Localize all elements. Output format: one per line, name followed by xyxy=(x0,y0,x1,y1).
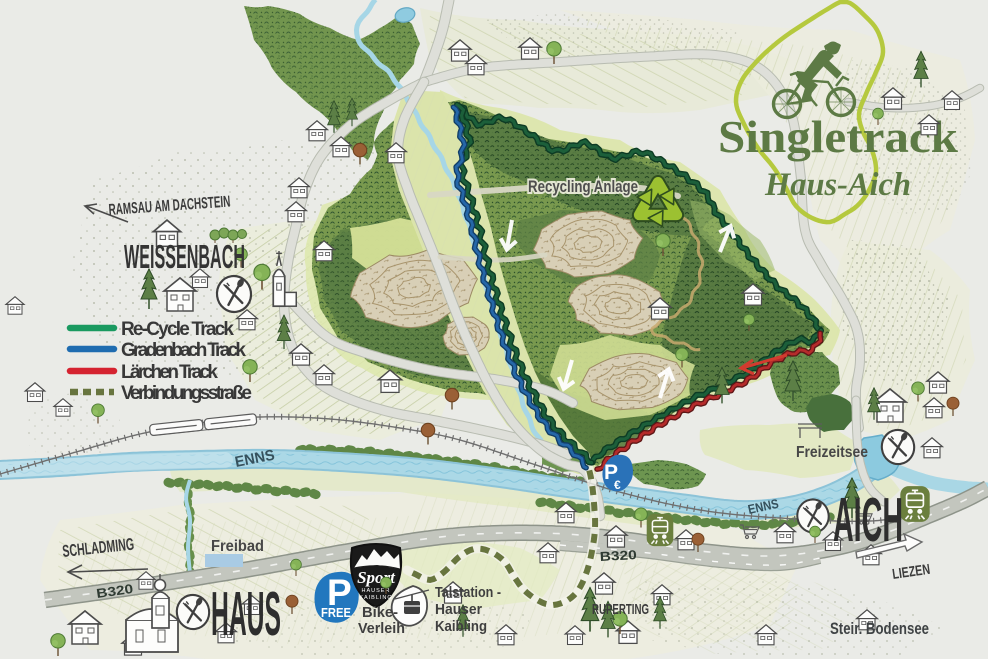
svg-text:FREE: FREE xyxy=(321,606,351,620)
svg-text:Bike-: Bike- xyxy=(362,604,398,621)
svg-text:Hauser: Hauser xyxy=(435,602,482,618)
svg-text:KAIBLING: KAIBLING xyxy=(359,595,392,601)
svg-text:Steir. Bodensee: Steir. Bodensee xyxy=(830,620,929,638)
svg-text:Singletrack: Singletrack xyxy=(718,111,958,162)
svg-text:Lärchen Track: Lärchen Track xyxy=(121,362,218,383)
svg-text:Verleih: Verleih xyxy=(358,620,405,637)
svg-text:Re-Cycle Track: Re-Cycle Track xyxy=(121,319,234,340)
svg-text:B320: B320 xyxy=(599,547,637,564)
svg-text:Kaibling: Kaibling xyxy=(435,619,487,635)
svg-text:Recycling Anlage: Recycling Anlage xyxy=(528,178,638,196)
svg-text:€: € xyxy=(614,478,621,492)
svg-text:Haus-Aich: Haus-Aich xyxy=(764,167,911,203)
svg-text:Gradenbach Track: Gradenbach Track xyxy=(121,340,246,361)
svg-text:Freibad: Freibad xyxy=(211,538,264,555)
svg-text:Verbindungsstraße: Verbindungsstraße xyxy=(121,383,252,404)
svg-text:HAUS: HAUS xyxy=(211,580,281,649)
svg-text:RUPERTING: RUPERTING xyxy=(592,601,649,618)
svg-text:Talstation -: Talstation - xyxy=(435,585,501,601)
svg-text:WEISSENBACH: WEISSENBACH xyxy=(124,238,245,275)
svg-text:Freizeitsee: Freizeitsee xyxy=(796,444,868,461)
